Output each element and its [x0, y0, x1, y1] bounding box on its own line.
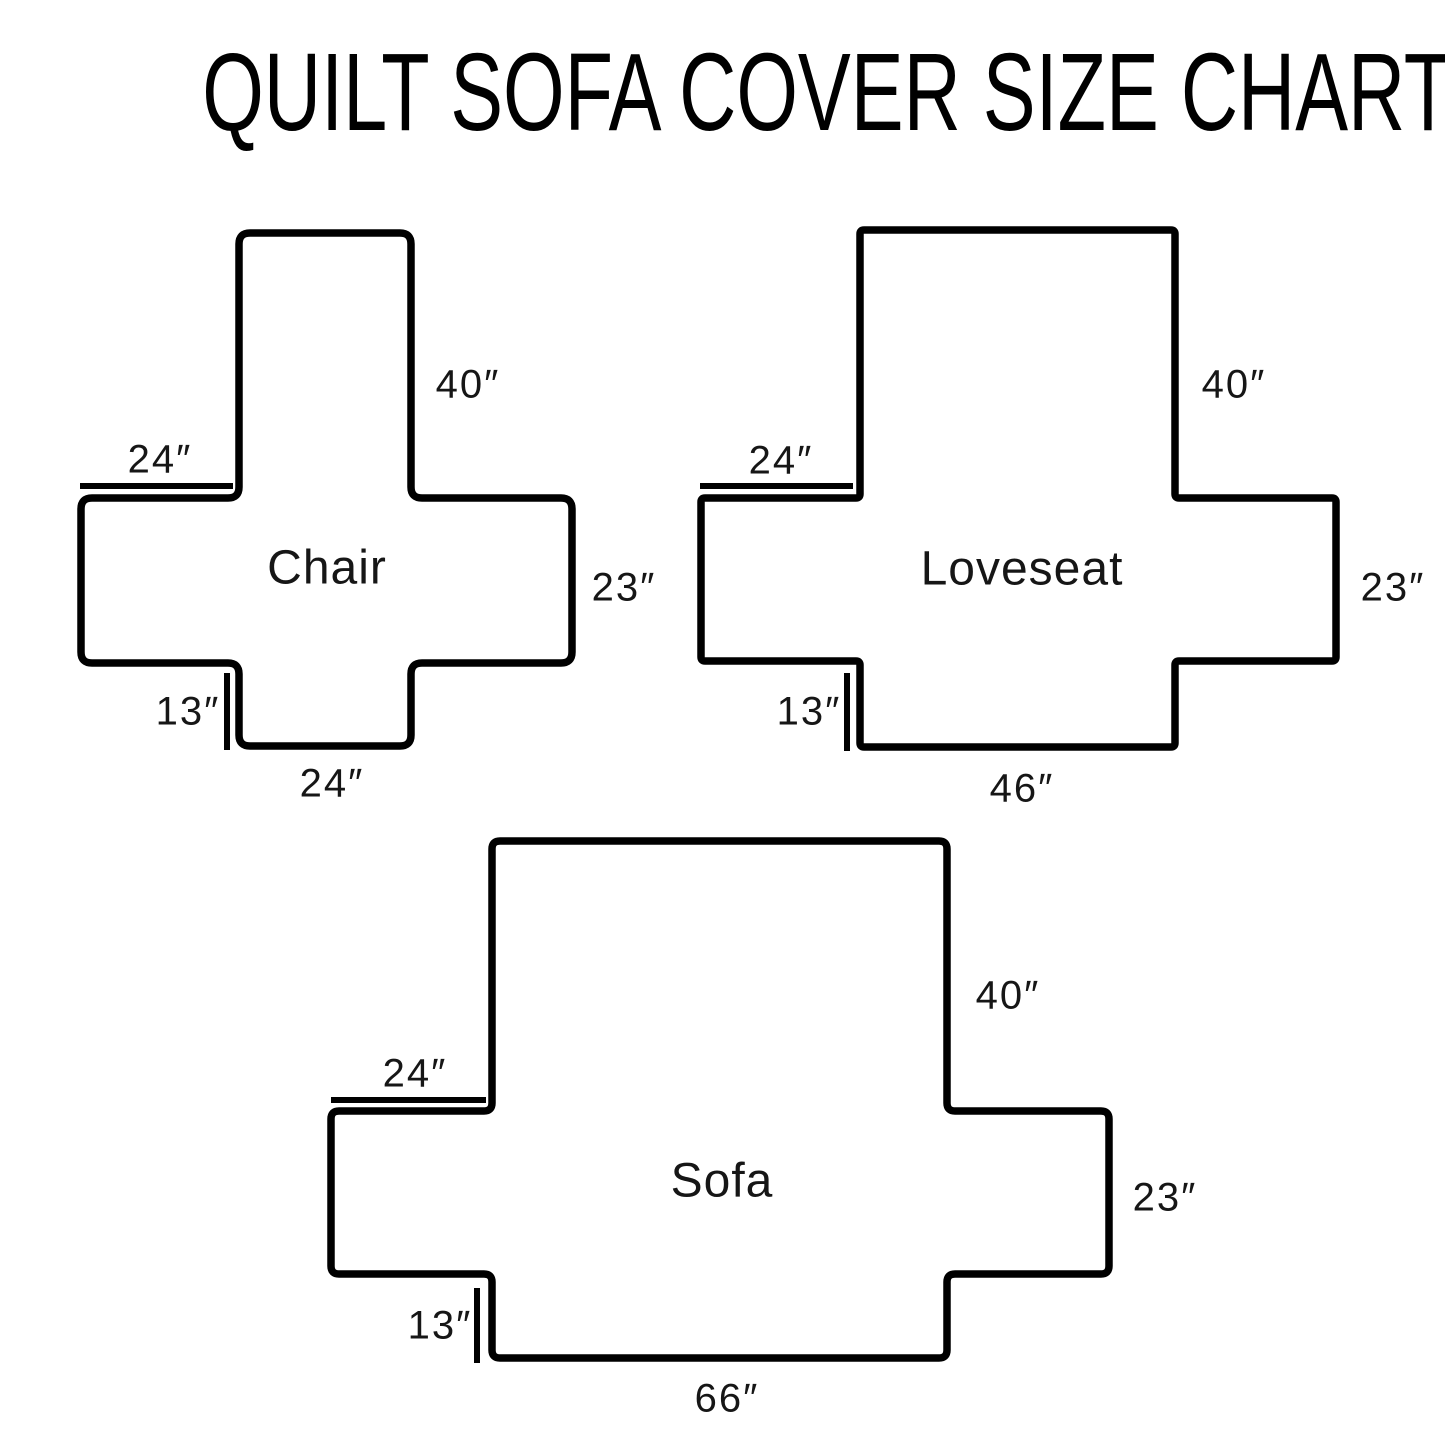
chair-bottom-width-label: 24″: [300, 762, 365, 807]
chair-side-height-label: 23″: [592, 566, 657, 611]
loveseat-back-height-label: 40″: [1202, 363, 1267, 408]
chair-outline: [81, 233, 572, 746]
loveseat-arm-width-label: 24″: [749, 439, 814, 484]
chair-name-label: Chair: [267, 541, 387, 596]
sofa-front-drop-label: 13″: [408, 1304, 473, 1349]
chair-back-height-label: 40″: [436, 363, 501, 408]
sofa-arm-width-label: 24″: [383, 1052, 448, 1097]
sofa-side-height-label: 23″: [1133, 1176, 1198, 1221]
loveseat-bottom-width-label: 46″: [990, 767, 1055, 812]
loveseat-side-height-label: 23″: [1361, 566, 1426, 611]
sofa-bottom-width-label: 66″: [695, 1377, 760, 1422]
size-chart-page: QUILT SOFA COVER SIZE CHART 40″ 24″ Chai…: [0, 0, 1445, 1435]
sofa-name-label: Sofa: [671, 1154, 774, 1209]
chair-front-drop-label: 13″: [156, 690, 221, 735]
chair-arm-width-label: 24″: [128, 438, 193, 483]
loveseat-front-drop-label: 13″: [777, 690, 842, 735]
loveseat-name-label: Loveseat: [921, 542, 1124, 597]
sofa-back-height-label: 40″: [976, 974, 1041, 1019]
